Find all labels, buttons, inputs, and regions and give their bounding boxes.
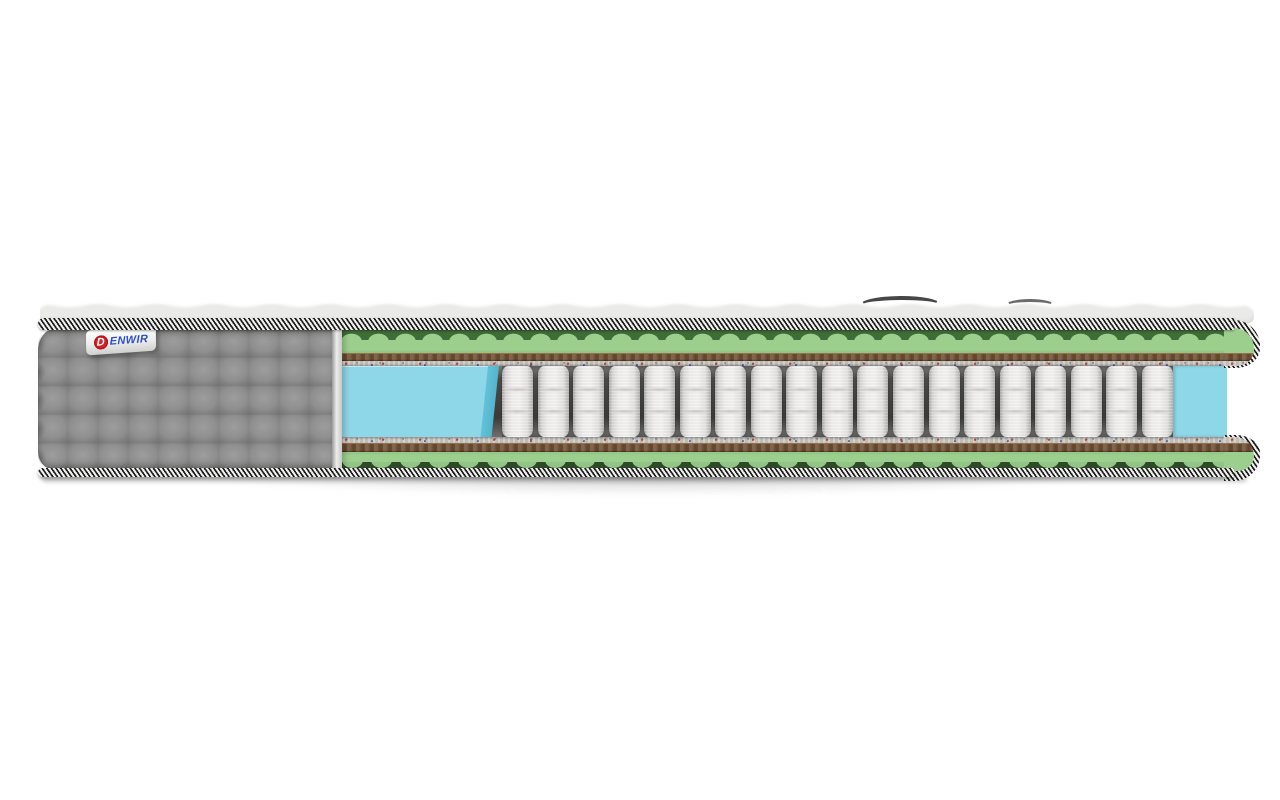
piping-binding-bottom xyxy=(38,468,1234,477)
spring-core-band xyxy=(338,366,1227,437)
pocket-spring xyxy=(893,366,924,437)
pocket-spring xyxy=(1071,366,1102,437)
cover-cut-edge xyxy=(332,329,342,469)
pocket-spring xyxy=(929,366,960,437)
edge-foam-block-left xyxy=(338,366,490,437)
pocket-spring xyxy=(964,366,995,437)
wavy-foam-green-top xyxy=(338,328,1232,353)
pocket-spring xyxy=(1035,366,1066,437)
quilted-side-cover xyxy=(38,329,338,469)
right-end-cap-bottom-layers xyxy=(1224,437,1254,471)
pocket-spring xyxy=(857,366,888,437)
pocket-spring xyxy=(502,366,533,437)
brand-d-icon: D xyxy=(94,334,108,349)
pocket-spring xyxy=(786,366,817,437)
pocket-spring xyxy=(1106,366,1137,437)
product-photo-stage: D ENWIR xyxy=(0,0,1280,800)
coir-felt-top xyxy=(338,353,1232,361)
cap-felt-brown xyxy=(1224,443,1254,452)
wavy-foam-green-bottom xyxy=(338,452,1232,462)
cap-felt-brown xyxy=(1224,353,1254,361)
right-end-cap-top-layers xyxy=(1224,328,1254,366)
pocket-spring xyxy=(609,366,640,437)
top-embroidery-mark xyxy=(1006,299,1054,311)
cap-fiber-gray xyxy=(1224,361,1254,366)
brand-name-text: ENWIR xyxy=(110,333,149,348)
piping-binding-top xyxy=(38,318,1234,330)
pocket-spring xyxy=(1142,366,1173,437)
pocket-spring xyxy=(644,366,675,437)
brand-label: D ENWIR xyxy=(86,326,156,356)
edge-foam-block-right xyxy=(1173,366,1227,437)
pocket-spring xyxy=(822,366,853,437)
pocket-spring xyxy=(751,366,782,437)
pocket-spring xyxy=(680,366,711,437)
pocket-spring xyxy=(538,366,569,437)
pocket-spring xyxy=(715,366,746,437)
cap-foam-green xyxy=(1224,328,1254,353)
coir-felt-bottom xyxy=(338,443,1232,452)
pocket-spring xyxy=(573,366,604,437)
pocket-spring xyxy=(1000,366,1031,437)
pocket-springs xyxy=(502,366,1173,437)
